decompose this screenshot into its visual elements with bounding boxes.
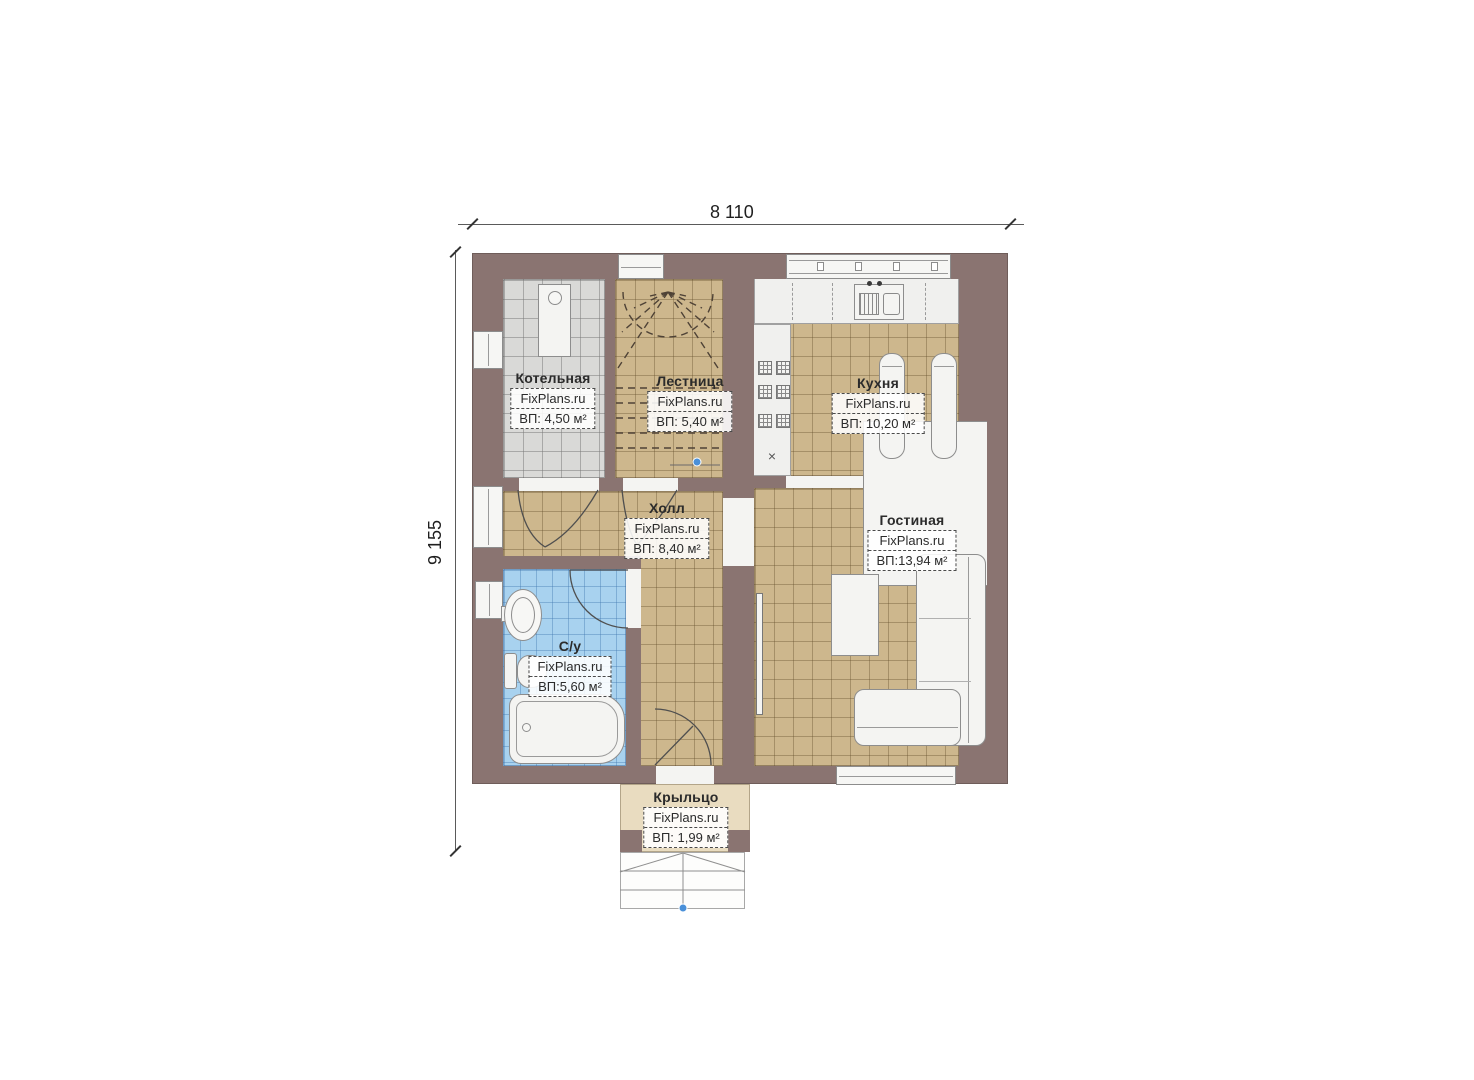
door-swing-entrance [655,709,711,765]
room-info-box: FixPlans.ru ВП:5,60 м² [528,656,611,697]
room-watermark: FixPlans.ru [868,531,955,550]
room-info-box: FixPlans.ru ВП: 8,40 м² [624,518,709,559]
room-info-box: FixPlans.ru ВП: 10,20 м² [832,393,925,434]
room-info-box: FixPlans.ru ВП: 4,50 м² [510,388,595,429]
stair-marker-dot [693,458,701,466]
room-area: ВП: 4,50 м² [511,408,594,428]
room-info-box: FixPlans.ru ВП: 1,99 м² [643,807,728,848]
room-label-boiler: Котельная FixPlans.ru ВП: 4,50 м² [510,370,595,429]
room-watermark: FixPlans.ru [511,389,594,408]
room-area: ВП: 10,20 м² [833,413,924,433]
room-area: ВП:13,94 м² [868,550,955,570]
room-watermark: FixPlans.ru [625,519,708,538]
door-swing-bath [570,570,628,628]
room-area: ВП:5,60 м² [529,676,610,696]
room-label-bath: С/у FixPlans.ru ВП:5,60 м² [528,638,611,697]
room-name: Крыльцо [643,789,728,805]
room-name: С/у [528,638,611,654]
door-swing-boiler [518,490,598,547]
plan-linework [440,240,1020,940]
porch-marker-dot [679,904,687,912]
room-label-porch: Крыльцо FixPlans.ru ВП: 1,99 м² [643,789,728,848]
room-label-living: Гостиная FixPlans.ru ВП:13,94 м² [867,512,956,571]
room-name: Кухня [832,375,925,391]
room-area: ВП: 1,99 м² [644,827,727,847]
room-watermark: FixPlans.ru [648,392,731,411]
room-area: ВП: 5,40 м² [648,411,731,431]
room-watermark: FixPlans.ru [529,657,610,676]
room-label-hall: Холл FixPlans.ru ВП: 8,40 м² [624,500,709,559]
room-watermark: FixPlans.ru [644,808,727,827]
room-label-stairs: Лестница FixPlans.ru ВП: 5,40 м² [647,373,732,432]
dimension-width-line [458,224,1024,225]
floor-plan-page: 8 110 9 155 [0,0,1474,1080]
room-info-box: FixPlans.ru ВП: 5,40 м² [647,391,732,432]
room-name: Гостиная [867,512,956,528]
room-area: ВП: 8,40 м² [625,538,708,558]
room-watermark: FixPlans.ru [833,394,924,413]
room-name: Котельная [510,370,595,386]
porch-step-lines [620,853,745,908]
room-label-kitchen: Кухня FixPlans.ru ВП: 10,20 м² [832,375,925,434]
room-info-box: FixPlans.ru ВП:13,94 м² [867,530,956,571]
room-name: Лестница [647,373,732,389]
dimension-width-label: 8 110 [710,202,754,223]
room-name: Холл [624,500,709,516]
